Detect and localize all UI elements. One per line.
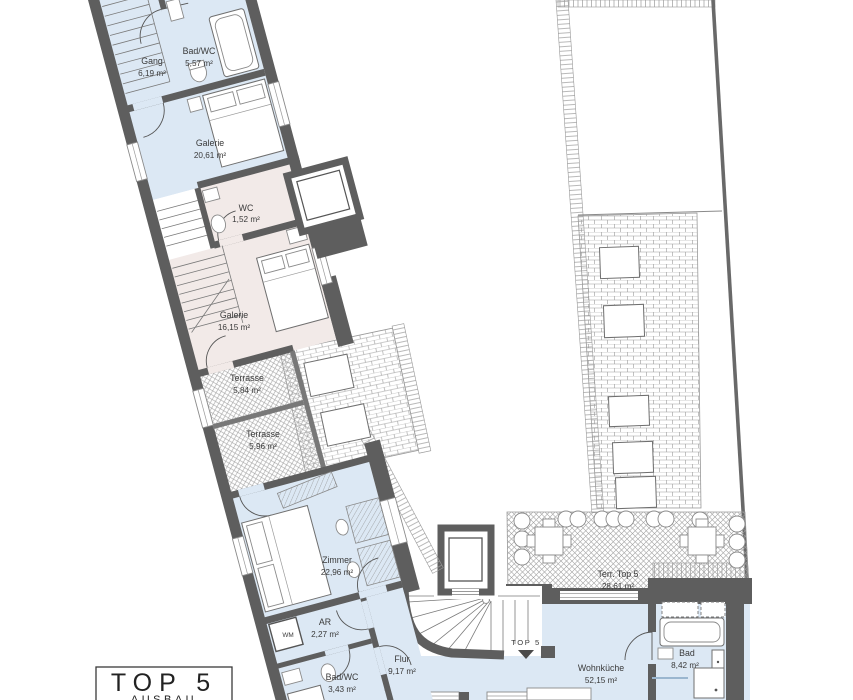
room-area-gang: 6,19 m² [138,69,166,78]
room-area-galerie1: 20,61 m² [194,151,227,160]
skylight-icon [599,246,639,278]
room-label-zimmer: Zimmer [322,555,352,565]
overhead-cabinet [662,602,698,617]
room-label-badwc-eg: Bad/WC [326,672,359,682]
room-area-badwc-og: 5,57 m² [185,59,213,68]
title-unit: TOP 5 [111,669,217,697]
shower-icon [694,668,724,698]
room-label-wohnkueche: Wohnküche [578,663,624,673]
bathtub-inner [664,622,720,642]
skylight-icon [603,304,644,337]
elevator-shaft [434,521,498,599]
window-terrace-door [560,591,638,600]
room-label-badwc-og: Bad/WC [183,46,216,56]
roof-edge-hatch-top [558,0,715,7]
wall-bad-left [648,604,656,632]
room-area-flur: 9,17 m² [388,667,416,676]
room-label-galerie1: Galerie [196,138,224,148]
room-area-terrasse1: 5,84 m² [233,386,261,395]
unit-title-box: TOP 5 AUSBAU [96,667,232,700]
wall-right [726,585,744,700]
room-area-terrasse-top5: 28,61 m² [602,582,635,591]
room-area-wc: 1,52 m² [232,215,260,224]
floor-plan-canvas: TOP 5 [0,0,853,700]
room-label-bad: Bad [679,648,695,658]
room-label-gang: Gang [141,56,163,66]
room-label-ar: AR [319,617,331,627]
overhead-cabinet [701,602,725,617]
washbasin-icon [658,648,673,659]
room-label-galerie2: Galerie [220,310,248,320]
room-area-ar: 2,27 m² [311,630,339,639]
neighbor-roof-area [556,0,748,594]
room-label-flur: Flur [394,654,409,664]
skylight-icon [615,476,656,508]
property-boundary-wall [713,0,748,594]
wall-bad-left-lower [648,664,656,700]
nightstand-icon [187,96,203,112]
wall-entrance-stub [541,646,555,658]
skylight-icon [608,395,649,426]
washing-machine-label: WM [282,632,293,639]
floor-plan-page: TOP 5 [0,0,853,700]
room-label-wc: WC [239,203,254,213]
room-area-wohnkueche: 52,15 m² [585,676,618,685]
dining-table-icon [527,688,591,700]
room-area-bad: 8,42 m² [671,661,699,670]
room-area-galerie2: 16,15 m² [218,323,251,332]
room-label-terrasse-top5: Terr. Top 5 [598,569,639,579]
room-label-terrasse1: Terrasse [230,373,264,383]
room-area-badwc-eg: 3,43 m² [328,685,356,694]
room-area-zimmer: 22,96 m² [321,568,354,577]
room-area-terrasse2: 5,96 m² [249,442,277,451]
elevator-car [449,538,482,581]
title-sub: AUSBAU [131,694,197,700]
entrance-label: TOP 5 [511,638,541,647]
skylight-icon [612,441,653,473]
room-label-terrasse2: Terrasse [246,429,280,439]
